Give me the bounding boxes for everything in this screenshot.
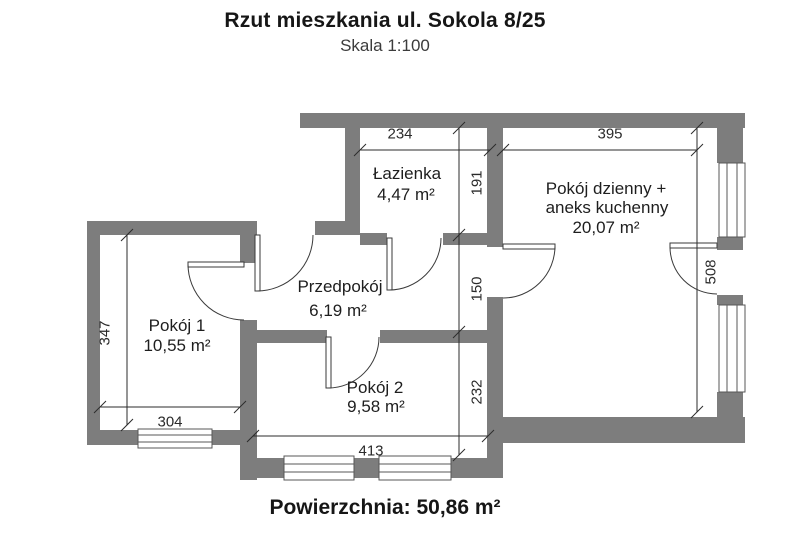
window-living-top <box>719 163 745 237</box>
room-label-pokoj2: Pokój 2 <box>347 378 404 398</box>
doors <box>188 235 717 388</box>
door-lazienka <box>387 238 441 290</box>
room-label-lazienka: Łazienka <box>373 164 441 184</box>
dim-pokoj1-height: 347 <box>97 320 114 345</box>
room-area-lazienka: 4,47 m² <box>377 185 435 205</box>
dim-lazienka-width: 234 <box>387 126 412 143</box>
dim-lazienka-height: 191 <box>469 170 486 195</box>
room-area-pokoj1: 10,55 m² <box>143 336 210 356</box>
door-pokoj1 <box>188 262 244 320</box>
room-area-przedpokoj: 6,19 m² <box>309 301 367 321</box>
room-label-pokoj1: Pokój 1 <box>149 316 206 336</box>
dim-living-height: 508 <box>703 259 720 284</box>
dim-pokoj2-width: 413 <box>358 443 383 460</box>
room-label-living-line2: aneks kuchenny <box>546 198 669 218</box>
room-area-living: 20,07 m² <box>572 218 639 238</box>
total-area-label: Powierzchnia: 50,86 m² <box>0 496 770 520</box>
room-label-living-line1: Pokój dzienny + <box>546 179 667 199</box>
window-pokoj2-left <box>284 456 354 480</box>
floor-plan-drawing <box>0 0 800 533</box>
dim-hall-height: 150 <box>469 276 486 301</box>
dim-pokoj2-height: 232 <box>469 379 486 404</box>
window-pokoj2-right <box>379 456 451 480</box>
dim-living-width: 395 <box>597 126 622 143</box>
floor-plan-page: Rzut mieszkania ul. Sokola 8/25 Skala 1:… <box>0 0 800 533</box>
dim-pokoj1-width: 304 <box>157 414 182 431</box>
window-living-bottom <box>719 305 745 392</box>
door-living-room <box>503 244 555 298</box>
room-label-przedpokoj: Przedpokój <box>297 277 382 297</box>
window-pokoj1 <box>138 429 212 448</box>
room-area-pokoj2: 9,58 m² <box>347 397 405 417</box>
